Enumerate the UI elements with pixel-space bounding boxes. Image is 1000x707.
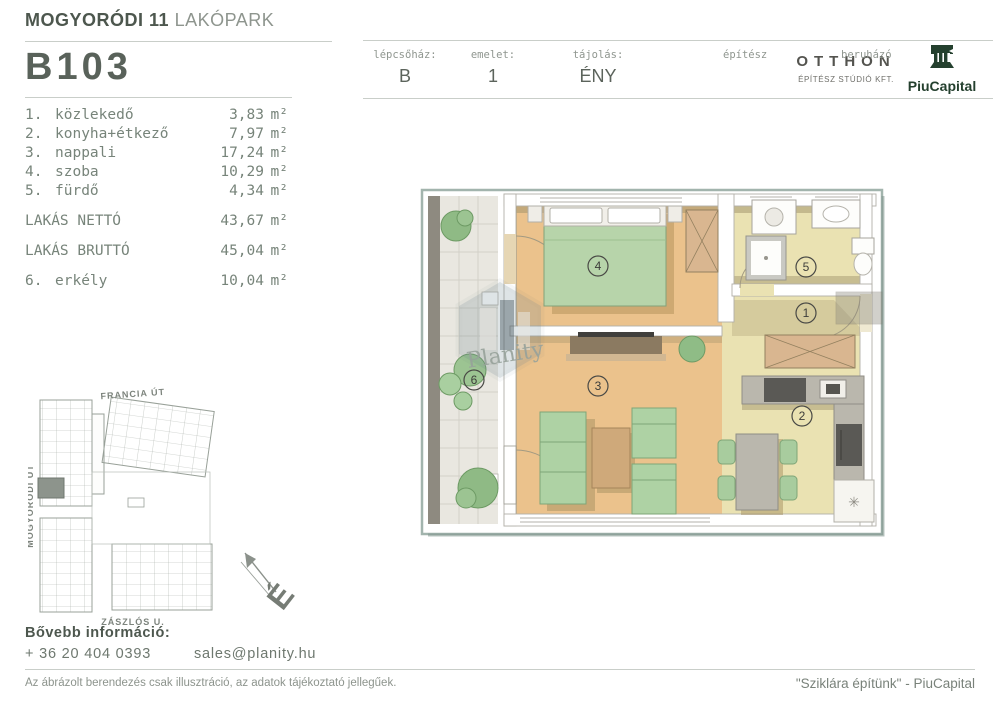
marker-kitchen: 2: [799, 409, 806, 423]
armchair: [632, 464, 676, 514]
room-row: 4. szoba 10,29 m²: [25, 163, 288, 182]
entry-mat: [836, 292, 882, 324]
field-staircase: lépcsőház: B: [373, 49, 437, 87]
bedroom-balcony-door-opening: [504, 234, 516, 284]
room-row: 3. nappali 17,24 m²: [25, 144, 288, 163]
field-floor-label: emelet:: [461, 49, 525, 61]
developer-name: PiuCapital: [903, 78, 981, 94]
dining-chair: [780, 476, 797, 500]
piucapital-column-icon: [925, 42, 959, 72]
armchair: [632, 408, 676, 458]
field-orientation-value: ÉNY: [563, 66, 633, 87]
field-floor-value: 1: [461, 66, 525, 87]
unit-id: B103: [25, 46, 132, 89]
marker-bedroom: 4: [595, 259, 602, 273]
dining-chair: [718, 476, 735, 500]
svg-text:✳: ✳: [848, 494, 860, 510]
marker-living: 3: [595, 379, 602, 393]
plant: [679, 336, 705, 362]
room-row: 2. konyha+étkező 7,97 m²: [25, 125, 288, 144]
bedroom-wardrobe: [686, 210, 718, 272]
field-floor: emelet: 1: [461, 49, 525, 87]
marker-hall: 1: [803, 306, 810, 320]
field-orientation: tájolás: ÉNY: [563, 49, 633, 87]
street-label-left: MOGYORÓDI ÚT: [28, 464, 35, 548]
footer-divider: [25, 669, 975, 670]
project-title-light: LAKÓPARK: [175, 10, 275, 30]
street-label-top: FRANCIA ÚT: [100, 386, 165, 401]
pillow: [550, 208, 602, 223]
compass-letter: É: [260, 577, 302, 616]
field-orientation-label: tájolás:: [563, 49, 633, 61]
email-address: sales@planity.hu: [194, 646, 316, 662]
bath-door-opening: [740, 284, 774, 296]
disclaimer-text: Az ábrázolt berendezés csak illusztráció…: [25, 677, 396, 689]
company-tagline: "Sziklára építünk" - PiuCapital: [796, 676, 975, 691]
hall-wardrobe: [765, 335, 855, 368]
header-info-strip: lépcsőház: B emelet: 1 tájolás: ÉNY épít…: [363, 40, 993, 99]
buildings: [40, 397, 214, 612]
developer-label: beruházó: [841, 49, 892, 61]
marker-bath: 5: [803, 260, 810, 274]
coffee-table: [592, 428, 630, 488]
field-staircase-value: B: [373, 66, 437, 87]
living-balcony-door: [504, 446, 516, 504]
stove: [764, 378, 806, 402]
datasheet-page: MOGYORÓDI 11 LAKÓPARK B103 lépcsőház: B …: [0, 0, 1000, 707]
north-compass: É: [232, 538, 312, 628]
pillow: [608, 208, 660, 223]
architect-label: építész: [723, 49, 767, 61]
title-divider: [25, 41, 332, 42]
toilet: [854, 253, 872, 275]
unit-id-divider: [25, 97, 292, 98]
room-row: 5. fürdő 4,34 m²: [25, 182, 288, 201]
architect-sub: ÉPÍTÉSZ STÚDIÓ KFT.: [781, 75, 911, 84]
marker-balcony: 6: [471, 373, 478, 387]
dining-chair: [780, 440, 797, 464]
net-area-row: LAKÁS NETTÓ 43,67 m²: [25, 212, 288, 231]
tv: [578, 332, 654, 337]
field-staircase-label: lépcsőház:: [373, 49, 437, 61]
dining-chair: [718, 440, 735, 464]
gross-area-row: LAKÁS BRUTTÓ 45,04 m²: [25, 242, 288, 261]
project-title: MOGYORÓDI 11 LAKÓPARK: [25, 10, 274, 31]
balcony-row: 6. erkély 10,04 m²: [25, 272, 288, 291]
dining-table: [736, 434, 778, 510]
unit-location-highlight: [38, 478, 64, 498]
nightstand: [668, 206, 682, 222]
floor-plan: ✳ Planity 4 3 5: [420, 188, 893, 538]
sofa: [540, 412, 586, 504]
project-title-bold: MOGYORÓDI 11: [25, 10, 169, 30]
site-plan: FRANCIA ÚT MOGYORÓDI ÚT ZÁSZLÓS U.: [28, 386, 228, 628]
phone-number: + 36 20 404 0393: [25, 646, 151, 662]
contact-line: + 36 20 404 0393 sales@planity.hu: [25, 646, 316, 662]
info-label: Bővebb információ:: [25, 625, 170, 641]
fridge: [836, 424, 862, 466]
room-list: 1. közlekedő 3,83 m² 2. konyha+étkező 7,…: [25, 106, 288, 291]
developer-logo: PiuCapital: [903, 42, 981, 94]
tv-cabinet: [570, 336, 662, 354]
room-row: 1. közlekedő 3,83 m²: [25, 106, 288, 125]
nightstand: [528, 206, 542, 222]
